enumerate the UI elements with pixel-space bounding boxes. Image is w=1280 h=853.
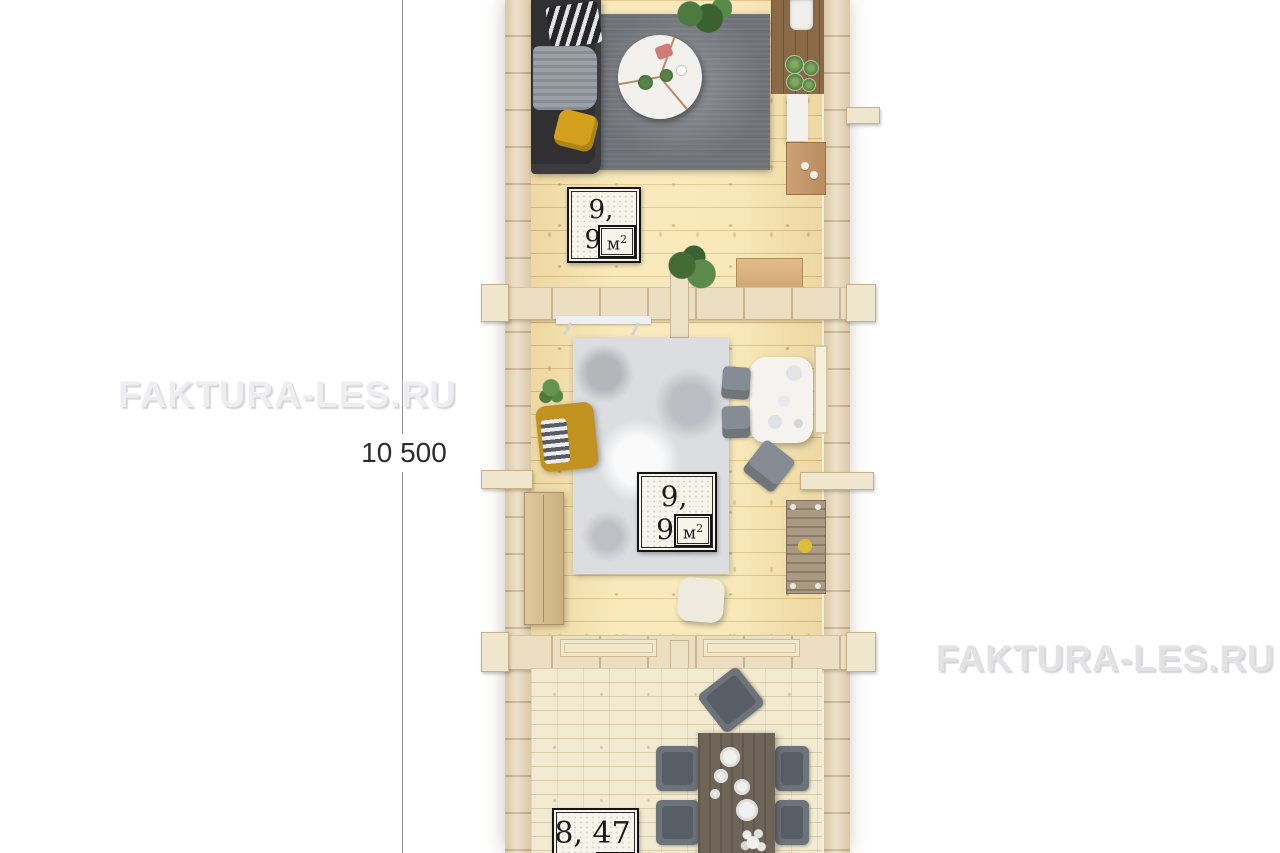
log-end-right [846, 632, 876, 672]
area-value: 8, 47 [554, 816, 631, 851]
log-tie-right [800, 472, 874, 490]
white-table [750, 357, 813, 443]
bench-knob [790, 504, 796, 510]
plate [720, 747, 740, 767]
dining-chair [656, 746, 699, 791]
window-right-wall [814, 345, 828, 434]
plate [714, 769, 728, 783]
unit-letter: м [683, 524, 696, 544]
unit-letter: м [607, 235, 620, 255]
table-cup [676, 65, 687, 76]
table-item [768, 415, 782, 429]
cabinet-knob [801, 162, 809, 170]
watermark-right: FAKTURA-LES.RU [936, 638, 1275, 680]
wardrobe-seam [543, 495, 544, 622]
log-end-left [481, 284, 509, 322]
floor-plan-render: 10 500 [0, 0, 1280, 853]
bench-knob [815, 504, 821, 510]
bench-knob [815, 583, 821, 589]
striped-blanket [540, 418, 570, 464]
chair-seat [662, 806, 693, 839]
sofa-patterned-pillow [545, 1, 602, 50]
bench-yellow-cushion [798, 539, 812, 553]
potted-plant-doorway [664, 243, 724, 299]
plate [736, 799, 758, 821]
dimension-line-vertical [402, 0, 403, 853]
chair-seat [781, 752, 803, 785]
round-coffee-table [618, 35, 702, 119]
area-unit-box: м2 [598, 225, 636, 258]
centerpiece [738, 827, 768, 853]
area-unit-box: м2 [674, 514, 712, 547]
succulent-plant [802, 78, 816, 92]
wall-inset-panel [703, 639, 800, 657]
succulent-plant [803, 60, 819, 76]
log-end-top-right [846, 107, 880, 124]
area-label-dining-room: 8, 47 м2 [552, 808, 639, 853]
log-end-right [846, 284, 876, 322]
wardrobe [524, 492, 564, 625]
kitchen-counter-white [787, 94, 808, 141]
table-plant [660, 69, 673, 82]
pouf [677, 576, 726, 623]
table-item [786, 365, 802, 381]
sofa-gray-throw [533, 46, 597, 110]
table-item [778, 395, 790, 407]
unit-exponent: 2 [620, 233, 627, 246]
plate [710, 789, 720, 799]
table-plant [638, 75, 653, 90]
wall-desk [736, 258, 803, 289]
watermark-left: FAKTURA-LES.RU [118, 374, 457, 416]
wall-inset-panel [560, 639, 657, 657]
log-end-left [481, 632, 509, 672]
gray-chair [721, 406, 750, 439]
exterior-wall-left [505, 0, 533, 853]
potted-plant-top [676, 0, 732, 38]
area-label-bedroom: 9, 90 м2 [637, 472, 717, 552]
plate [734, 779, 750, 795]
dining-table [698, 733, 775, 853]
dimension-length-label: 10 500 [350, 434, 458, 472]
succulent-plant [785, 55, 804, 74]
log-tie-left [481, 470, 533, 489]
gray-chair [721, 366, 751, 400]
dining-chair [656, 800, 699, 845]
yellow-armchair [535, 401, 600, 473]
dining-chair [775, 800, 809, 845]
wood-cabinet [786, 142, 826, 195]
area-label-living-room: 9, 90 м2 [567, 187, 641, 263]
cactus-plant [539, 377, 563, 405]
cabinet-knob [810, 171, 818, 179]
chair-seat [781, 806, 803, 839]
table-item [794, 419, 803, 428]
bench-knob [790, 583, 796, 589]
chair-seat [662, 752, 693, 785]
slatted-bench [786, 500, 826, 594]
dining-chair [775, 746, 809, 791]
kitchen-sink [790, 0, 813, 30]
unit-exponent: 2 [696, 522, 703, 535]
